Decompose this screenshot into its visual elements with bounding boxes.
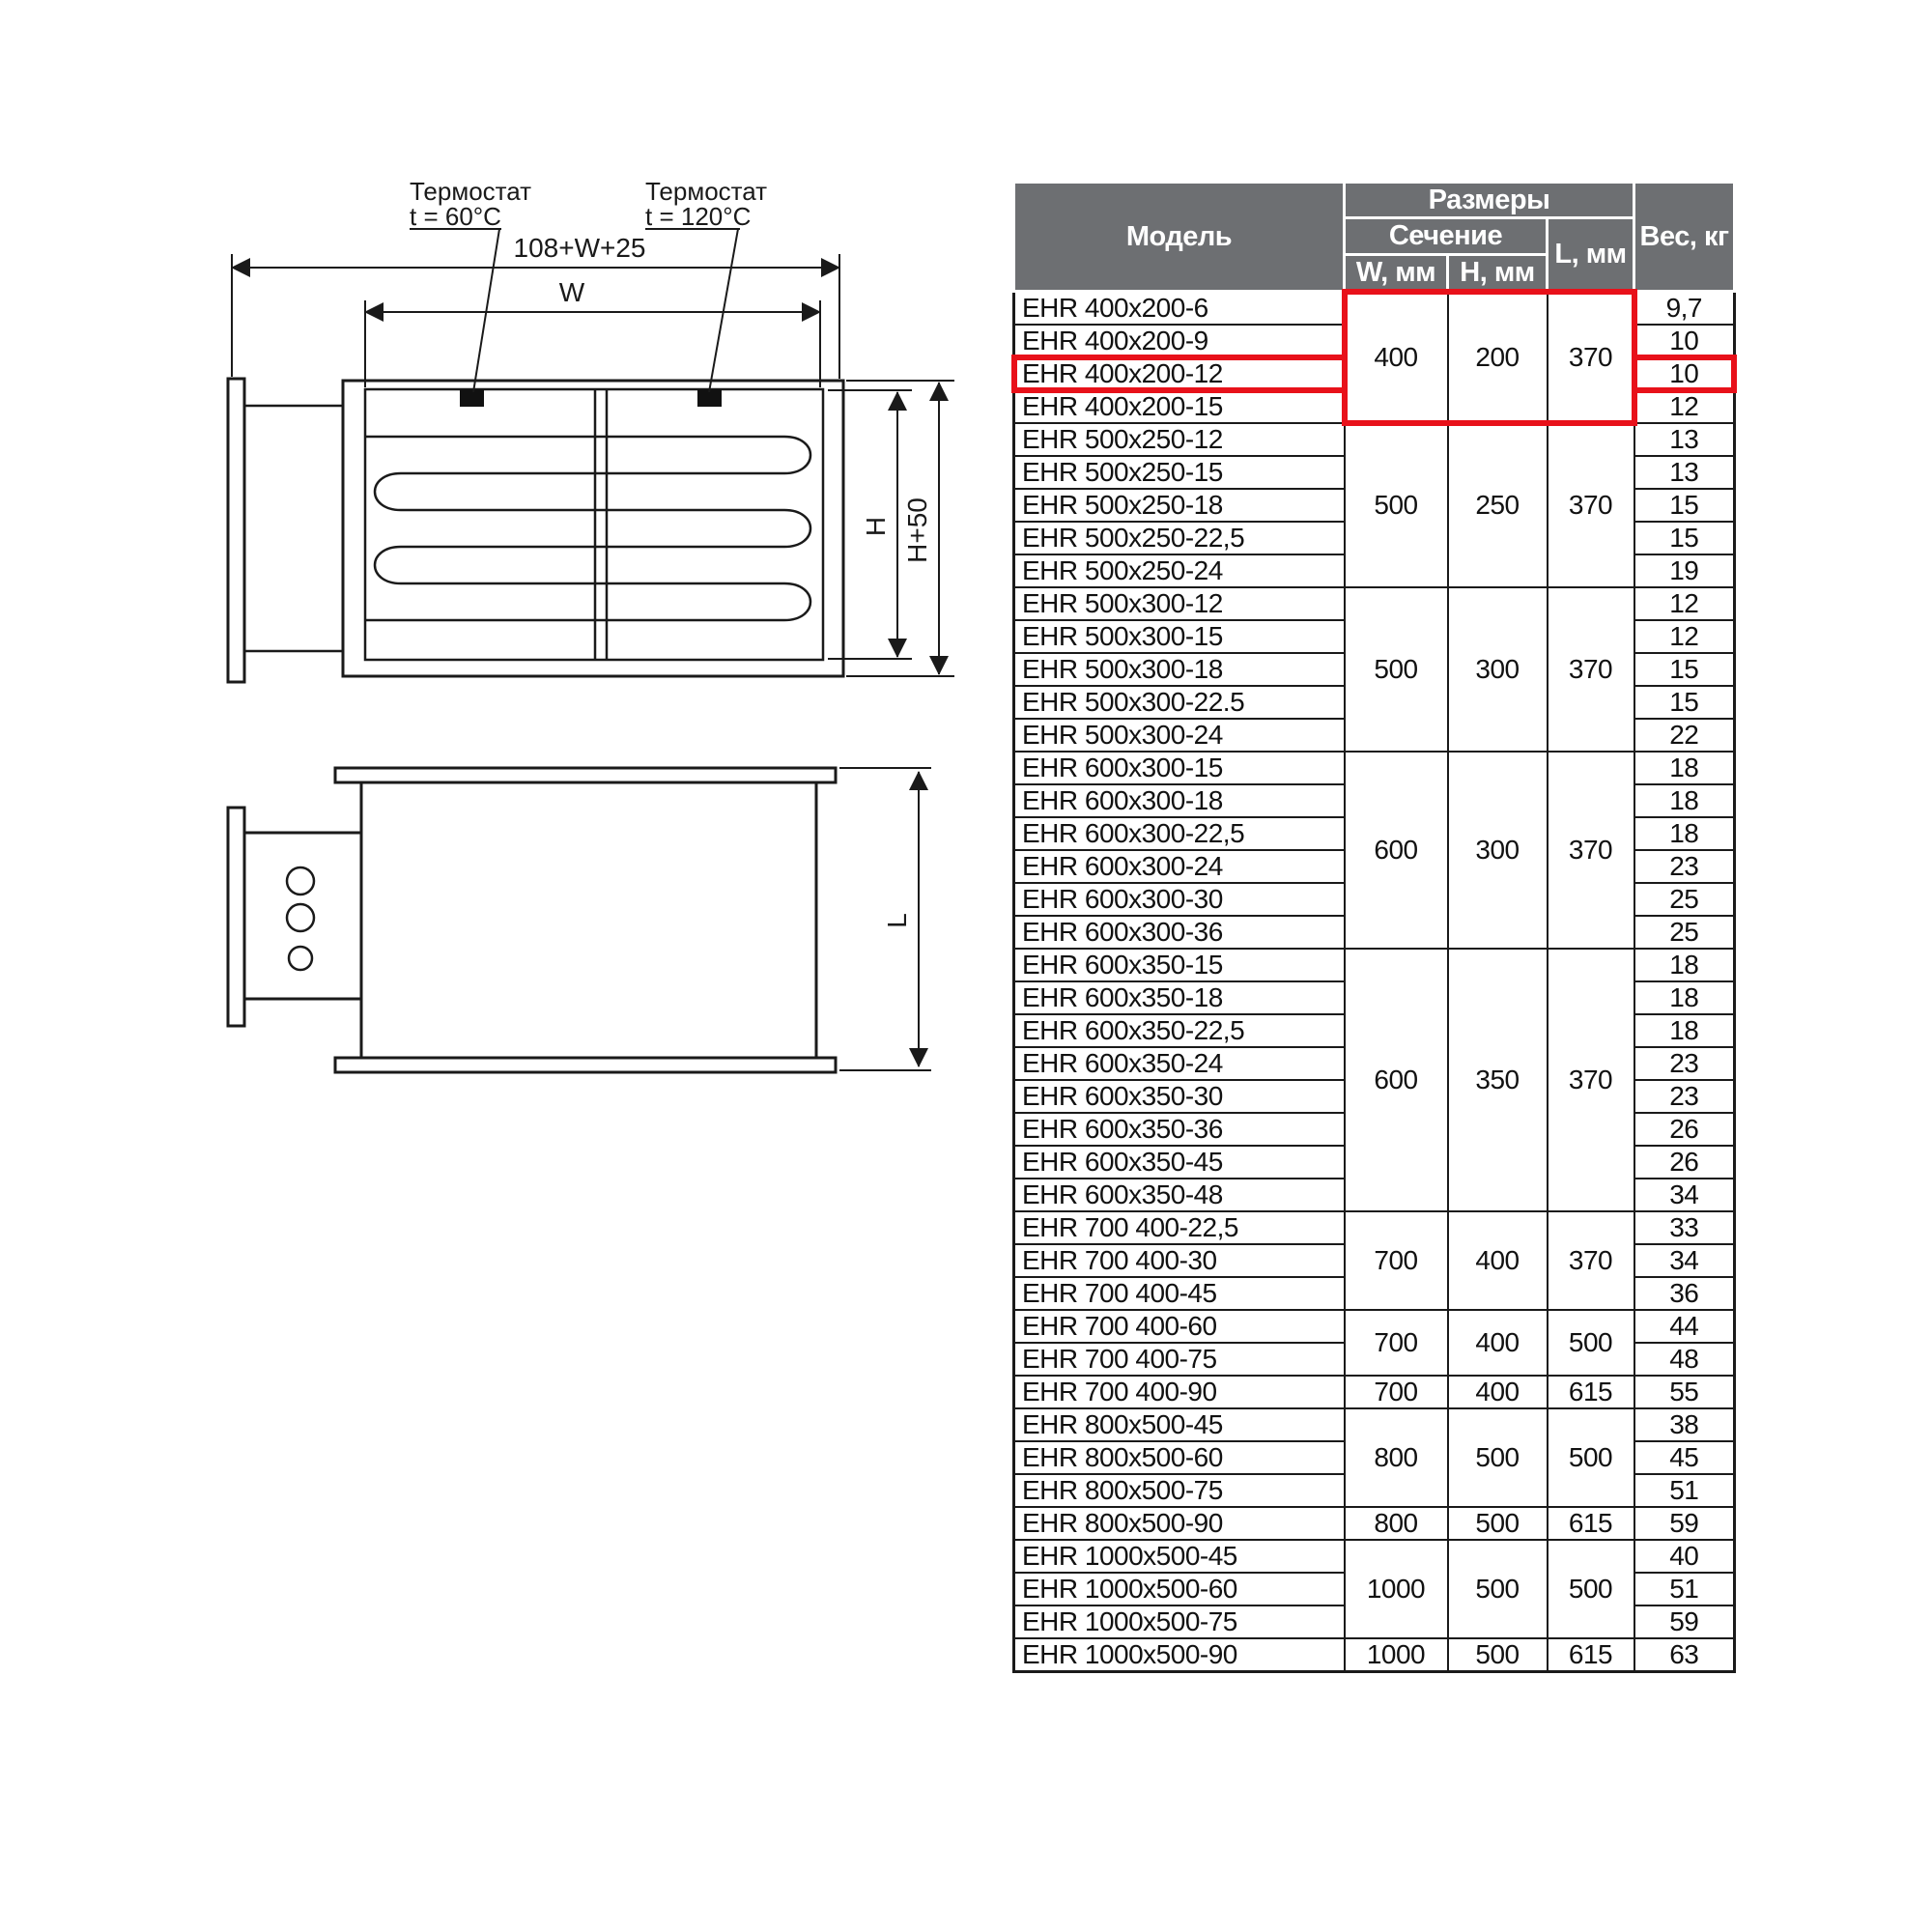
table-cell-h: 400 (1448, 1211, 1548, 1310)
table-cell-weight: 55 (1634, 1376, 1735, 1408)
table-cell-h: 500 (1448, 1408, 1548, 1507)
table-cell-model: EHR 700 400-90 (1014, 1376, 1345, 1408)
table-cell-weight: 23 (1634, 1080, 1735, 1113)
table-cell-weight: 38 (1634, 1408, 1735, 1441)
table-cell-l: 370 (1548, 587, 1634, 752)
side-top-flange (335, 768, 836, 782)
table-cell-weight: 23 (1634, 850, 1735, 883)
table-cell-l: 615 (1548, 1376, 1634, 1408)
table-cell-model: EHR 700 400-60 (1014, 1310, 1345, 1343)
table-cell-w: 400 (1345, 292, 1448, 424)
table-cell-h: 300 (1448, 587, 1548, 752)
terminal-box (244, 833, 361, 999)
header-model: Модель (1014, 183, 1345, 292)
table-cell-model: EHR 600x350-24 (1014, 1047, 1345, 1080)
table-cell-model: EHR 1000x500-60 (1014, 1573, 1345, 1605)
table-cell-model: EHR 500x250-15 (1014, 456, 1345, 489)
table-cell-l: 370 (1548, 949, 1634, 1211)
table-cell-weight: 9,7 (1634, 292, 1735, 326)
table-cell-h: 500 (1448, 1638, 1548, 1672)
thermostat-60-leader (473, 229, 499, 392)
table-cell-h: 400 (1448, 1310, 1548, 1376)
table-cell-model: EHR 600x350-22,5 (1014, 1014, 1345, 1047)
table-cell-weight: 25 (1634, 883, 1735, 916)
spec-table-wrap: Модель Размеры Вес, кг Сечение L, мм W, … (1012, 181, 1736, 1673)
table-cell-model: EHR 800x500-75 (1014, 1474, 1345, 1507)
table-cell-weight: 12 (1634, 587, 1735, 620)
table-row: EHR 1000x500-45100050050040 (1014, 1540, 1735, 1573)
table-cell-weight: 33 (1634, 1211, 1735, 1244)
table-cell-h: 400 (1448, 1376, 1548, 1408)
side-inlet-flange-plate (228, 808, 244, 1026)
table-cell-weight: 45 (1634, 1441, 1735, 1474)
table-cell-weight: 10 (1634, 357, 1735, 390)
table-cell-w: 700 (1345, 1310, 1448, 1376)
spec-table-header: Модель Размеры Вес, кг Сечение L, мм W, … (1014, 183, 1735, 292)
table-cell-model: EHR 1000x500-75 (1014, 1605, 1345, 1638)
table-cell-l: 500 (1548, 1310, 1634, 1376)
table-cell-weight: 34 (1634, 1179, 1735, 1211)
table-cell-l: 370 (1548, 752, 1634, 949)
table-cell-model: EHR 500x300-12 (1014, 587, 1345, 620)
table-cell-l: 500 (1548, 1408, 1634, 1507)
thermostat-120-value: t = 120°C (645, 202, 751, 231)
table-cell-w: 700 (1345, 1376, 1448, 1408)
spec-table: Модель Размеры Вес, кг Сечение L, мм W, … (1012, 181, 1736, 1673)
page: Термостат t = 60°C Термостат t = 120°C 1… (0, 0, 1932, 1932)
table-cell-weight: 18 (1634, 752, 1735, 784)
table-cell-weight: 59 (1634, 1507, 1735, 1540)
table-cell-model: EHR 700 400-30 (1014, 1244, 1345, 1277)
table-cell-h: 300 (1448, 752, 1548, 949)
table-cell-model: EHR 500x300-18 (1014, 653, 1345, 686)
table-cell-l: 370 (1548, 292, 1634, 424)
table-cell-model: EHR 500x300-24 (1014, 719, 1345, 752)
table-cell-weight: 19 (1634, 554, 1735, 587)
header-weight: Вес, кг (1634, 183, 1735, 292)
table-cell-model: EHR 600x350-30 (1014, 1080, 1345, 1113)
table-cell-weight: 18 (1634, 817, 1735, 850)
table-cell-weight: 22 (1634, 719, 1735, 752)
table-cell-model: EHR 600x300-36 (1014, 916, 1345, 949)
top-view: Термостат t = 60°C Термостат t = 120°C 1… (228, 177, 954, 682)
table-cell-weight: 59 (1634, 1605, 1735, 1638)
table-cell-w: 600 (1345, 949, 1448, 1211)
header-h: H, мм (1448, 255, 1548, 292)
table-cell-weight: 10 (1634, 325, 1735, 357)
dim-w-label: W (559, 277, 585, 307)
table-cell-h: 200 (1448, 292, 1548, 424)
table-cell-model: EHR 400x200-15 (1014, 390, 1345, 423)
table-cell-model: EHR 600x350-18 (1014, 981, 1345, 1014)
table-cell-w: 600 (1345, 752, 1448, 949)
header-w: W, мм (1345, 255, 1448, 292)
table-cell-h: 250 (1448, 423, 1548, 587)
table-cell-weight: 15 (1634, 653, 1735, 686)
table-cell-weight: 48 (1634, 1343, 1735, 1376)
table-cell-h: 350 (1448, 949, 1548, 1211)
table-cell-w: 800 (1345, 1408, 1448, 1507)
table-cell-weight: 63 (1634, 1638, 1735, 1672)
table-row: EHR 600x350-1560035037018 (1014, 949, 1735, 981)
table-cell-weight: 15 (1634, 489, 1735, 522)
thermostat-120-leader (709, 229, 738, 392)
table-cell-model: EHR 600x300-24 (1014, 850, 1345, 883)
table-cell-model: EHR 700 400-75 (1014, 1343, 1345, 1376)
table-cell-weight: 18 (1634, 981, 1735, 1014)
table-cell-weight: 25 (1634, 916, 1735, 949)
table-cell-w: 1000 (1345, 1638, 1448, 1672)
table-cell-model: EHR 800x500-45 (1014, 1408, 1345, 1441)
side-body (361, 782, 816, 1058)
table-cell-weight: 51 (1634, 1573, 1735, 1605)
thermostat-60-sensor (460, 389, 484, 407)
table-cell-model: EHR 700 400-45 (1014, 1277, 1345, 1310)
table-cell-l: 370 (1548, 1211, 1634, 1310)
table-cell-model: EHR 400x200-9 (1014, 325, 1345, 357)
table-cell-model: EHR 500x300-15 (1014, 620, 1345, 653)
table-cell-model: EHR 1000x500-90 (1014, 1638, 1345, 1672)
table-cell-model: EHR 500x250-18 (1014, 489, 1345, 522)
table-cell-model: EHR 600x350-45 (1014, 1146, 1345, 1179)
table-row: EHR 800x500-4580050050038 (1014, 1408, 1735, 1441)
table-cell-model: EHR 500x300-22.5 (1014, 686, 1345, 719)
header-section: Сечение (1345, 218, 1548, 255)
table-cell-l: 370 (1548, 423, 1634, 587)
table-cell-weight: 15 (1634, 522, 1735, 554)
table-cell-weight: 12 (1634, 620, 1735, 653)
table-cell-w: 500 (1345, 423, 1448, 587)
table-row: EHR 500x300-1250030037012 (1014, 587, 1735, 620)
table-cell-model: EHR 500x250-12 (1014, 423, 1345, 456)
table-cell-weight: 23 (1634, 1047, 1735, 1080)
table-cell-model: EHR 500x250-24 (1014, 554, 1345, 587)
header-l: L, мм (1548, 218, 1634, 292)
table-cell-model: EHR 600x300-30 (1014, 883, 1345, 916)
side-view: L (228, 768, 931, 1072)
table-cell-model: EHR 800x500-90 (1014, 1507, 1345, 1540)
header-dimensions: Размеры (1345, 183, 1634, 218)
table-cell-weight: 18 (1634, 784, 1735, 817)
table-cell-model: EHR 600x300-22,5 (1014, 817, 1345, 850)
table-cell-model: EHR 400x200-12 (1014, 357, 1345, 390)
table-row: EHR 700 400-22,570040037033 (1014, 1211, 1735, 1244)
table-cell-weight: 13 (1634, 456, 1735, 489)
table-cell-model: EHR 600x350-48 (1014, 1179, 1345, 1211)
table-cell-model: EHR 600x350-15 (1014, 949, 1345, 981)
table-cell-model: EHR 600x300-15 (1014, 752, 1345, 784)
table-cell-weight: 18 (1634, 1014, 1735, 1047)
casing-outline (343, 381, 843, 676)
table-cell-weight: 18 (1634, 949, 1735, 981)
spec-table-body: EHR 400x200-64002003709,7EHR 400x200-910… (1014, 292, 1735, 1672)
table-cell-weight: 12 (1634, 390, 1735, 423)
table-row: EHR 400x200-64002003709,7 (1014, 292, 1735, 326)
table-cell-weight: 34 (1634, 1244, 1735, 1277)
table-cell-l: 615 (1548, 1507, 1634, 1540)
table-cell-weight: 51 (1634, 1474, 1735, 1507)
thermostat-60-value: t = 60°C (410, 202, 501, 231)
side-bottom-flange (335, 1058, 836, 1072)
table-cell-weight: 40 (1634, 1540, 1735, 1573)
table-row: EHR 700 400-9070040061555 (1014, 1376, 1735, 1408)
table-cell-w: 1000 (1345, 1540, 1448, 1638)
table-row: EHR 500x250-1250025037013 (1014, 423, 1735, 456)
table-cell-weight: 15 (1634, 686, 1735, 719)
table-cell-weight: 26 (1634, 1113, 1735, 1146)
dim-h50-label: H+50 (902, 497, 932, 563)
table-cell-h: 500 (1448, 1507, 1548, 1540)
table-cell-w: 500 (1345, 587, 1448, 752)
heater-technical-drawing: Термостат t = 60°C Термостат t = 120°C 1… (0, 0, 1005, 1207)
table-cell-l: 500 (1548, 1540, 1634, 1638)
table-cell-model: EHR 700 400-22,5 (1014, 1211, 1345, 1244)
table-row: EHR 800x500-9080050061559 (1014, 1507, 1735, 1540)
table-row: EHR 1000x500-90100050061563 (1014, 1638, 1735, 1672)
table-row: EHR 700 400-6070040050044 (1014, 1310, 1735, 1343)
table-cell-w: 800 (1345, 1507, 1448, 1540)
table-cell-model: EHR 500x250-22,5 (1014, 522, 1345, 554)
table-cell-h: 500 (1448, 1540, 1548, 1638)
table-cell-l: 615 (1548, 1638, 1634, 1672)
table-cell-weight: 36 (1634, 1277, 1735, 1310)
dim-total-label: 108+W+25 (514, 233, 646, 263)
table-row: EHR 600x300-1560030037018 (1014, 752, 1735, 784)
dim-l-label: L (882, 913, 912, 928)
table-cell-model: EHR 400x200-6 (1014, 292, 1345, 326)
table-cell-weight: 44 (1634, 1310, 1735, 1343)
table-cell-weight: 26 (1634, 1146, 1735, 1179)
table-cell-model: EHR 600x300-18 (1014, 784, 1345, 817)
table-cell-w: 700 (1345, 1211, 1448, 1310)
table-cell-model: EHR 600x350-36 (1014, 1113, 1345, 1146)
table-cell-model: EHR 1000x500-45 (1014, 1540, 1345, 1573)
dim-h-label: H (861, 517, 891, 536)
inlet-flange-plate (228, 379, 244, 682)
table-cell-model: EHR 800x500-60 (1014, 1441, 1345, 1474)
table-cell-weight: 13 (1634, 423, 1735, 456)
